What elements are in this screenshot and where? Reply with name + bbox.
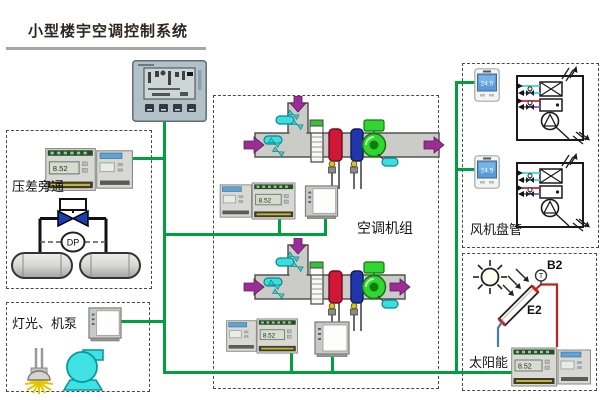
fancoil-coil-icon (540, 82, 562, 96)
ahu2-io-module (314, 321, 350, 357)
ahu-section-label: 空调机组 (357, 221, 413, 236)
sun-icon (473, 260, 507, 294)
pipe-valve-icon (526, 174, 534, 183)
hmi-panel-icon (132, 60, 207, 122)
thermostat-reading: 24.5 (481, 168, 494, 175)
solar-collector-tag: E2 (527, 303, 542, 317)
ddc-lcd-reading: 8.52 (263, 332, 276, 339)
ddc-lcd-reading: 8.52 (53, 164, 68, 173)
bus-stub-ahu1-ddc (278, 219, 281, 235)
fancoil-heater-icon (540, 186, 562, 198)
bus-right-vertical (455, 81, 458, 374)
bypass-valve-icon (58, 199, 88, 226)
lighting-section-label: 灯光、机泵 (12, 317, 77, 331)
ddc-lcd-reading: 8.52 (518, 364, 532, 371)
air-break-bottom (573, 219, 587, 231)
ahu1-ddc-controller: 8.52 (218, 182, 297, 220)
fancoil-section-label: 风机盘管 (470, 223, 522, 237)
filter-icon (311, 133, 323, 162)
tank-left (12, 253, 72, 278)
supply-fan-icon (363, 134, 386, 157)
bypass-section-label: 压差旁通 (12, 180, 64, 194)
hmi-touch-panel (132, 60, 207, 122)
fancoil-heater-icon (540, 99, 562, 111)
supply-fan-icon (363, 276, 386, 299)
branch-sensor-capsule (276, 116, 294, 124)
solar-radiation-arrows (503, 269, 526, 293)
cooling-coil (351, 129, 363, 161)
fancoil-fan-icon (542, 113, 559, 130)
fan-sensor-capsule (382, 300, 398, 308)
bus-bottom-horizontal (163, 371, 513, 374)
temp-sensor-symbol: T (539, 273, 544, 280)
lamp-icon (22, 346, 56, 394)
dp-sensor-icon: DP (62, 233, 85, 252)
pipe-temp-sensor-icon: T (536, 270, 547, 285)
filter-icon (311, 275, 323, 304)
fancoil-fan-icon (542, 200, 559, 217)
page-title: 小型楼宇空调控制系统 (28, 20, 188, 41)
ddc-lcd-reading: 8.52 (258, 197, 271, 204)
branch-sensor-capsule (276, 258, 294, 266)
bus-branch-bypass-controller (131, 157, 166, 160)
bus-stub-ahu1-module (324, 218, 327, 235)
lighting-io-module (88, 306, 122, 342)
room-thermostat-2: 24.5 (474, 155, 500, 189)
air-break-bottom (573, 132, 587, 144)
fancoil-schematic-1 (513, 66, 597, 146)
pipe-valve-icon (526, 101, 534, 110)
thermostat-reading: 24.5 (481, 81, 494, 88)
heating-coil (329, 271, 342, 303)
bus-branch-ahu1 (163, 233, 327, 236)
cooling-coil (351, 271, 363, 303)
bus-branch-lighting-controller (120, 320, 166, 323)
solar-ddc-controller: 8.52 (511, 347, 591, 387)
heating-coil (329, 129, 342, 161)
fancoil-coil-icon (540, 169, 562, 183)
hvac-system-diagram: 小型楼宇空调控制系统 (0, 0, 600, 400)
bypass-valve-schematic: DP (8, 196, 148, 286)
ahu2-ddc-controller: 8.52 (226, 318, 298, 354)
bus-branch-thermostat2 (455, 168, 476, 171)
solar-section-label: 太阳能 (469, 356, 508, 370)
filter-sensor-icon (310, 120, 323, 133)
solar-sensor-tag: B2 (547, 258, 562, 272)
room-thermostat-1: 24.5 (474, 68, 500, 102)
pump-icon (60, 346, 106, 392)
ahu1-io-module (304, 185, 339, 219)
solar-return-pipe (498, 322, 502, 347)
dp-sensor-label: DP (67, 238, 80, 248)
pipe-valve-icon (526, 188, 534, 197)
fan-sensor-capsule (382, 158, 398, 166)
ahu-unit-1 (242, 96, 447, 196)
pipe-valve-icon (526, 87, 534, 96)
bus-stub-ahu2-module (331, 356, 334, 373)
bus-branch-thermostat1 (455, 81, 476, 84)
filter-sensor-icon (310, 262, 323, 275)
fancoil-schematic-2 (513, 153, 597, 233)
tank-right (80, 253, 140, 278)
title-underline (6, 47, 206, 50)
